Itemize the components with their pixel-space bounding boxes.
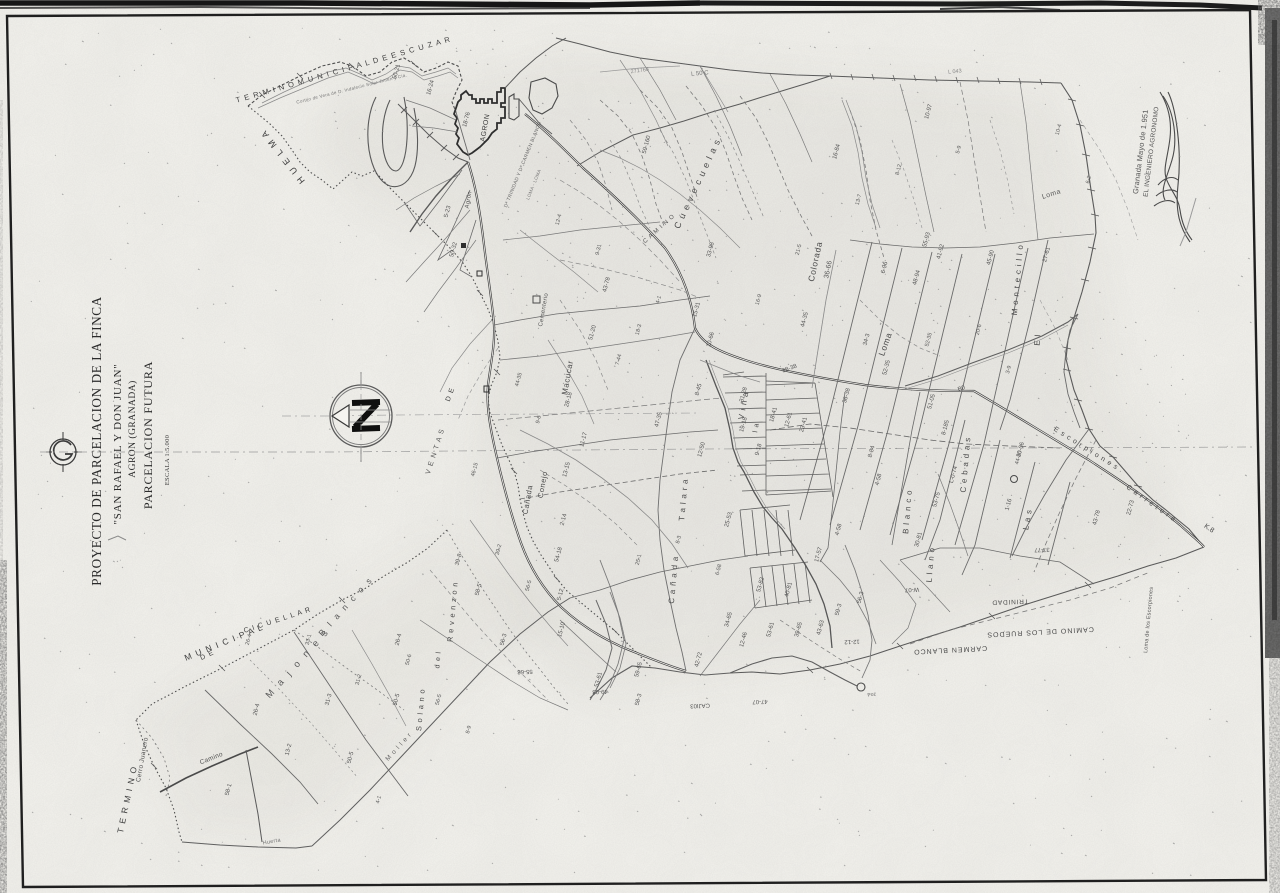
svg-text:W-07: W-07 — [904, 586, 919, 593]
svg-text:CAJI03: CAJI03 — [689, 702, 710, 709]
svg-text:47-07: 47-07 — [752, 698, 768, 705]
svg-text:TRINIDAD: TRINIDAD — [991, 597, 1028, 605]
svg-text:37-77: 37-77 — [1034, 546, 1050, 553]
svg-text:PROYECTO DE PARCELACION DE LA: PROYECTO DE PARCELACION DE LA FINCA — [89, 296, 104, 586]
svg-text:12-12: 12-12 — [844, 638, 860, 645]
svg-text:55-68: 55-68 — [517, 668, 533, 675]
svg-text:E l: E l — [1033, 334, 1043, 346]
svg-text:ESCALA 1:5.000: ESCALA 1:5.000 — [164, 435, 171, 485]
svg-text:L 043: L 043 — [948, 68, 962, 75]
svg-text:AGRON (GRANADA): AGRON (GRANADA) — [127, 380, 138, 477]
svg-text:PARCELACION FUTURA: PARCELACION FUTURA — [141, 361, 155, 509]
svg-text:d e l: d e l — [434, 651, 442, 669]
svg-text:"SAN RAFAEL Y DON JUAN": "SAN RAFAEL Y DON JUAN" — [112, 363, 124, 524]
